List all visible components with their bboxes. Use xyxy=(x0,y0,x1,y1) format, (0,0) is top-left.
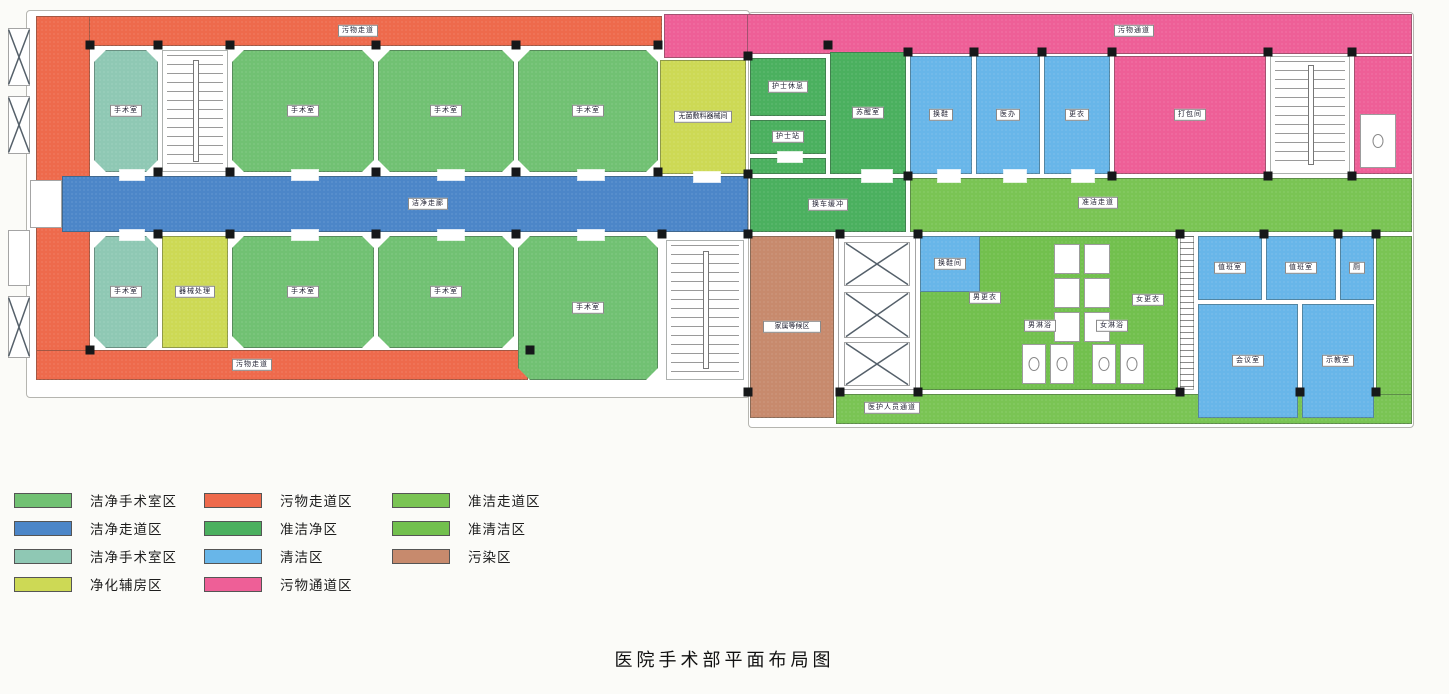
duty-room-1-label: 值班室 xyxy=(1214,262,1246,274)
legend-item: 洁净走道区 xyxy=(14,518,163,538)
structural-column xyxy=(836,230,845,239)
changing-room-small-label: 更衣 xyxy=(1065,109,1089,121)
legend-label: 准洁走道区 xyxy=(468,490,541,510)
page-title: 医院手术部平面布局图 xyxy=(0,646,1449,672)
elevator-1 xyxy=(844,242,910,286)
sanitary-fixture-icon xyxy=(1057,357,1068,371)
structural-column xyxy=(824,41,833,50)
sanitary-fixture-icon xyxy=(1127,357,1138,371)
mens-changing-label-label: 男更衣 xyxy=(969,292,1001,304)
structural-column xyxy=(1296,388,1305,397)
structural-column xyxy=(1176,388,1185,397)
structural-column xyxy=(1038,48,1047,57)
legend-item: 准洁净区 xyxy=(204,518,338,538)
floor-plan-page: 污物走道污物走道手术室手术室手术室手术室洁净走廊手术室器械处理手术室手术室手术室… xyxy=(0,0,1449,694)
toilet-small-room-label: 厕 xyxy=(1349,262,1365,274)
legend-item: 污物通道区 xyxy=(204,574,353,594)
structural-column xyxy=(744,388,753,397)
waste-passage-top-label: 污物通道 xyxy=(1114,25,1154,37)
structural-column xyxy=(1348,172,1357,181)
legend-item: 污物走道区 xyxy=(204,490,353,510)
shower-stall-3 xyxy=(1092,344,1116,384)
sanitary-fixture-icon xyxy=(1373,134,1384,148)
locker-1 xyxy=(1054,244,1080,274)
elevator-2 xyxy=(844,292,910,338)
legend-item: 洁净手术室区 xyxy=(14,546,177,566)
shower-stall-2 xyxy=(1050,344,1074,384)
cart-exchange-buffer-label: 换车缓冲 xyxy=(808,199,848,211)
legend-item: 清洁区 xyxy=(204,546,324,566)
structural-column xyxy=(744,230,753,239)
legend-label: 洁净手术室区 xyxy=(90,546,177,566)
legend-label: 洁净走道区 xyxy=(90,518,163,538)
structural-column xyxy=(1372,230,1381,239)
legend-label: 清洁区 xyxy=(280,546,324,566)
semi-clean-corridor-label: 准洁走道 xyxy=(1078,197,1118,209)
shoe-change-room-label: 换鞋 xyxy=(929,109,953,121)
packing-room-label: 打包间 xyxy=(1174,109,1206,121)
legend-label: 污物通道区 xyxy=(280,574,353,594)
structural-column xyxy=(1264,172,1273,181)
legend-swatch xyxy=(204,577,262,592)
legend-label: 准清洁区 xyxy=(468,518,526,538)
structural-column xyxy=(914,230,923,239)
legend-swatch xyxy=(204,493,262,508)
womens-changing-label-label: 女更衣 xyxy=(1132,294,1164,306)
door-opening xyxy=(778,152,802,162)
recovery-room-label: 苏醒室 xyxy=(852,107,884,119)
legend-label: 洁净手术室区 xyxy=(90,490,177,510)
structural-column xyxy=(836,388,845,397)
duty-room-2-label: 值班室 xyxy=(1285,262,1317,274)
legend-swatch xyxy=(14,493,72,508)
door-opening xyxy=(1072,170,1094,182)
structural-column xyxy=(1348,48,1357,57)
door-opening xyxy=(1004,170,1026,182)
locker-4 xyxy=(1084,278,1110,308)
legend-item: 洁净手术室区 xyxy=(14,490,177,510)
legend: 洁净手术室区洁净走道区洁净手术室区净化辅房区污物走道区准洁净区清洁区污物通道区准… xyxy=(0,0,700,620)
locker-3 xyxy=(1054,278,1080,308)
structural-column xyxy=(914,388,923,397)
legend-label: 污染区 xyxy=(468,546,512,566)
legend-swatch xyxy=(14,549,72,564)
structural-column xyxy=(1176,230,1185,239)
legend-swatch xyxy=(392,549,450,564)
legend-swatch xyxy=(204,521,262,536)
legend-swatch xyxy=(204,549,262,564)
structural-column xyxy=(1334,230,1343,239)
mens-shower-label-label: 男淋浴 xyxy=(1024,320,1056,332)
locker-5 xyxy=(1054,312,1080,342)
legend-label: 净化辅房区 xyxy=(90,574,163,594)
sanitary-fixture-icon xyxy=(1099,357,1110,371)
womens-shower-label-label: 女淋浴 xyxy=(1096,320,1128,332)
doctor-office-label: 医办 xyxy=(996,109,1020,121)
legend-item: 污染区 xyxy=(392,546,512,566)
contaminated-waiting-area-label: 家属等候区 xyxy=(763,321,821,333)
structural-column xyxy=(904,172,913,181)
stairwell-right xyxy=(1270,56,1350,174)
door-opening xyxy=(862,170,892,182)
sanitary-fixture-icon xyxy=(1029,357,1040,371)
legend-swatch xyxy=(14,577,72,592)
shower-stall-4 xyxy=(1120,344,1144,384)
structural-column xyxy=(744,52,753,61)
demo-room-label: 示教室 xyxy=(1322,355,1354,367)
structural-column xyxy=(970,48,979,57)
shoe-change-room-2-label: 换鞋间 xyxy=(934,258,966,270)
legend-label: 污物走道区 xyxy=(280,490,353,510)
door-opening xyxy=(938,170,960,182)
staff-passage-bottom-label: 医护人员通道 xyxy=(864,402,920,414)
ramp-strip xyxy=(1180,236,1194,390)
structural-column xyxy=(1264,48,1273,57)
structural-column xyxy=(1260,230,1269,239)
nurse-rest-room-label: 护士休息 xyxy=(768,81,808,93)
legend-label: 准洁净区 xyxy=(280,518,338,538)
elevator-3 xyxy=(844,342,910,386)
locker-2 xyxy=(1084,244,1110,274)
legend-swatch xyxy=(14,521,72,536)
structural-column xyxy=(1372,388,1381,397)
meeting-room-label: 会议室 xyxy=(1232,355,1264,367)
structural-column xyxy=(744,170,753,179)
legend-swatch xyxy=(392,493,450,508)
legend-item: 准洁走道区 xyxy=(392,490,541,510)
structural-column xyxy=(1108,48,1117,57)
legend-item: 准清洁区 xyxy=(392,518,526,538)
structural-column xyxy=(1108,172,1117,181)
nurse-station-label: 护士站 xyxy=(772,131,804,143)
shower-stall-1 xyxy=(1022,344,1046,384)
structural-column xyxy=(904,48,913,57)
legend-swatch xyxy=(392,521,450,536)
legend-item: 净化辅房区 xyxy=(14,574,163,594)
semi-clean-corridor xyxy=(910,178,1412,232)
toilet-fixture-right xyxy=(1360,114,1396,168)
